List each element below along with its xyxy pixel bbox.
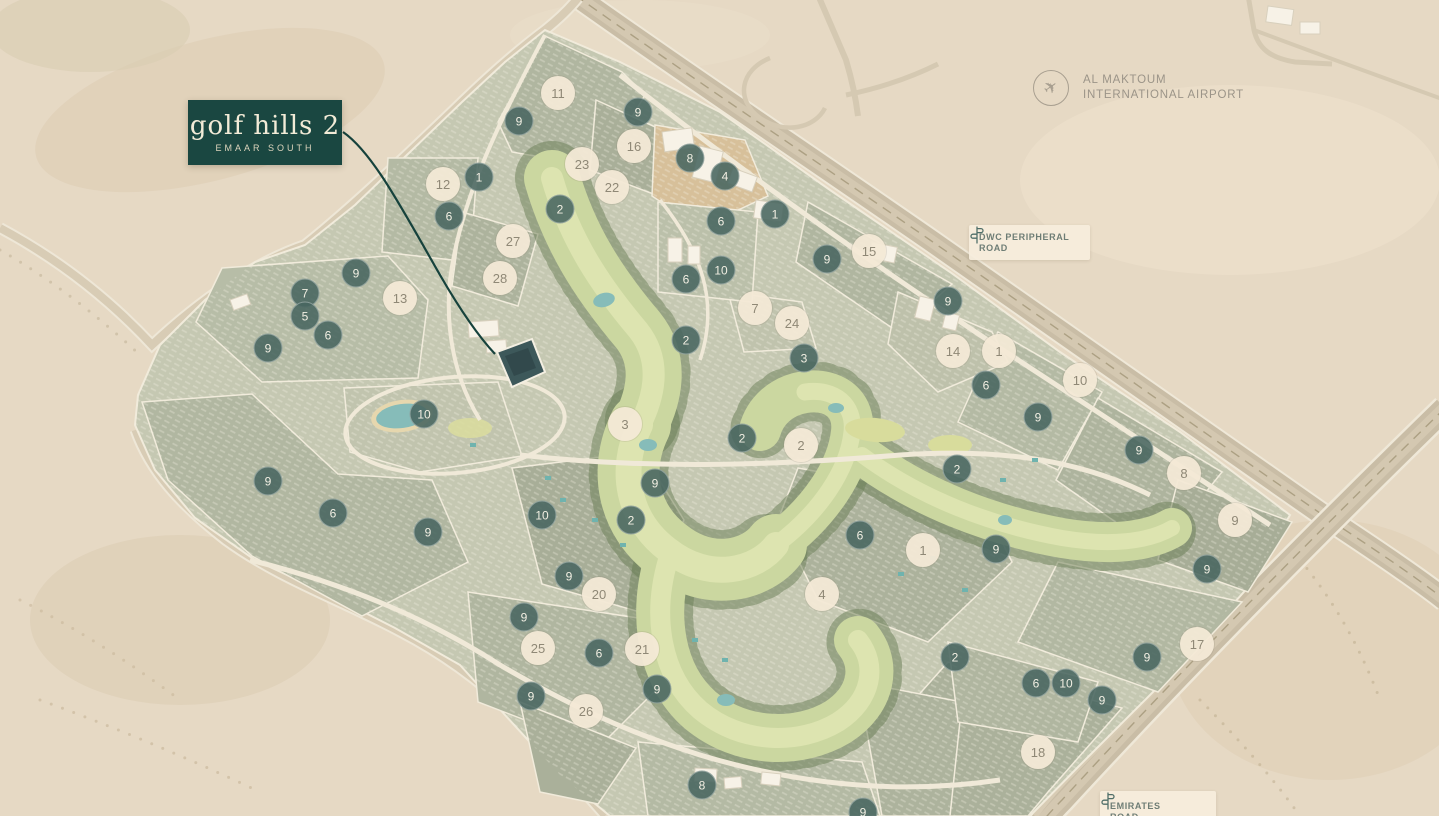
plot-number-marker: 9 <box>510 603 539 632</box>
emirates-road-label-text: EMIRATES ROAD <box>1110 801 1161 816</box>
plot-number-marker: 8 <box>688 771 717 800</box>
plot-number-marker: 9 <box>1193 555 1222 584</box>
plot-number-marker: 9 <box>1125 436 1154 465</box>
plot-number-marker: 6 <box>972 371 1001 400</box>
plot-number-marker: 9 <box>934 287 963 316</box>
plot-number-marker: 9 <box>555 562 584 591</box>
project-subtitle: EMAAR SOUTH <box>215 143 314 153</box>
plot-number-marker: 4 <box>805 577 839 611</box>
plot-number-marker: 9 <box>517 682 546 711</box>
plot-number-marker: 13 <box>383 281 417 315</box>
signpost-icon <box>1100 791 1116 811</box>
project-badge: golf hills 2 EMAAR SOUTH <box>188 100 342 165</box>
plot-number-marker: 28 <box>483 261 517 295</box>
dwc-road-label-text: DWC PERIPHERAL ROAD <box>979 232 1069 254</box>
plot-number-marker: 9 <box>1133 643 1162 672</box>
airplane-icon: ✈ <box>1033 70 1069 106</box>
masterplan-map: 9984121669109679562936109292996102969999… <box>0 0 1439 816</box>
plot-number-marker: 12 <box>426 167 460 201</box>
plot-number-marker: 8 <box>676 144 705 173</box>
plot-number-marker: 3 <box>790 344 819 373</box>
plot-number-marker: 2 <box>546 195 575 224</box>
plot-number-marker: 9 <box>342 259 371 288</box>
plot-number-marker: 2 <box>617 506 646 535</box>
plot-number-marker: 1 <box>761 200 790 229</box>
plot-number-marker: 2 <box>728 424 757 453</box>
plot-number-marker: 9 <box>849 798 878 816</box>
signpost-icon <box>969 225 985 245</box>
plot-number-marker: 9 <box>254 334 283 363</box>
plot-number-marker: 10 <box>707 256 736 285</box>
plot-number-marker: 18 <box>1021 735 1055 769</box>
plot-number-marker: 10 <box>1063 363 1097 397</box>
plot-number-marker: 10 <box>410 400 439 429</box>
plot-number-marker: 9 <box>982 535 1011 564</box>
plot-number-marker: 16 <box>617 129 651 163</box>
plot-number-marker: 9 <box>254 467 283 496</box>
plot-number-marker: 11 <box>541 76 575 110</box>
plot-number-marker: 6 <box>435 202 464 231</box>
plot-number-marker: 15 <box>852 234 886 268</box>
plot-number-marker: 3 <box>608 407 642 441</box>
plot-number-marker: 17 <box>1180 627 1214 661</box>
plot-number-marker: 26 <box>569 694 603 728</box>
plot-number-marker: 9 <box>641 469 670 498</box>
dwc-road-label: DWC PERIPHERAL ROAD <box>969 225 1090 260</box>
plot-number-marker: 9 <box>1088 686 1117 715</box>
plot-number-marker: 10 <box>528 501 557 530</box>
plot-number-marker: 6 <box>672 265 701 294</box>
plot-number-marker: 21 <box>625 632 659 666</box>
plot-number-marker: 9 <box>813 245 842 274</box>
plot-number-marker: 6 <box>707 207 736 236</box>
plot-number-marker: 10 <box>1052 669 1081 698</box>
plot-number-marker: 24 <box>775 306 809 340</box>
plot-number-marker: 25 <box>521 631 555 665</box>
plot-number-marker: 9 <box>505 107 534 136</box>
plot-number-marker: 6 <box>1022 669 1051 698</box>
plot-number-marker: 2 <box>784 428 818 462</box>
plot-number-marker: 23 <box>565 147 599 181</box>
plot-number-marker: 2 <box>941 643 970 672</box>
plot-number-marker: 22 <box>595 170 629 204</box>
plot-number-marker: 20 <box>582 577 616 611</box>
plot-number-marker: 27 <box>496 224 530 258</box>
plot-number-marker: 6 <box>846 521 875 550</box>
plot-number-marker: 2 <box>943 455 972 484</box>
plot-number-marker: 9 <box>1024 403 1053 432</box>
plot-number-marker: 1 <box>906 533 940 567</box>
airport-label-text: AL MAKTOUM INTERNATIONAL AIRPORT <box>1083 73 1244 103</box>
plot-number-marker: 7 <box>738 291 772 325</box>
plot-number-marker: 6 <box>585 639 614 668</box>
plot-number-marker: 9 <box>414 518 443 547</box>
plot-number-marker: 1 <box>982 334 1016 368</box>
emirates-road-label: EMIRATES ROAD <box>1100 791 1216 816</box>
plot-number-marker: 9 <box>643 675 672 704</box>
plot-number-marker: 14 <box>936 334 970 368</box>
project-title: golf hills 2 <box>190 113 340 139</box>
plot-number-marker: 1 <box>465 163 494 192</box>
airport-label: ✈ AL MAKTOUM INTERNATIONAL AIRPORT <box>1033 70 1244 106</box>
plot-number-marker: 6 <box>314 321 343 350</box>
plot-number-marker: 4 <box>711 162 740 191</box>
plot-number-marker: 9 <box>624 98 653 127</box>
plot-number-marker: 8 <box>1167 456 1201 490</box>
plot-number-marker: 9 <box>1218 503 1252 537</box>
plot-number-marker: 6 <box>319 499 348 528</box>
plot-number-marker: 2 <box>672 326 701 355</box>
